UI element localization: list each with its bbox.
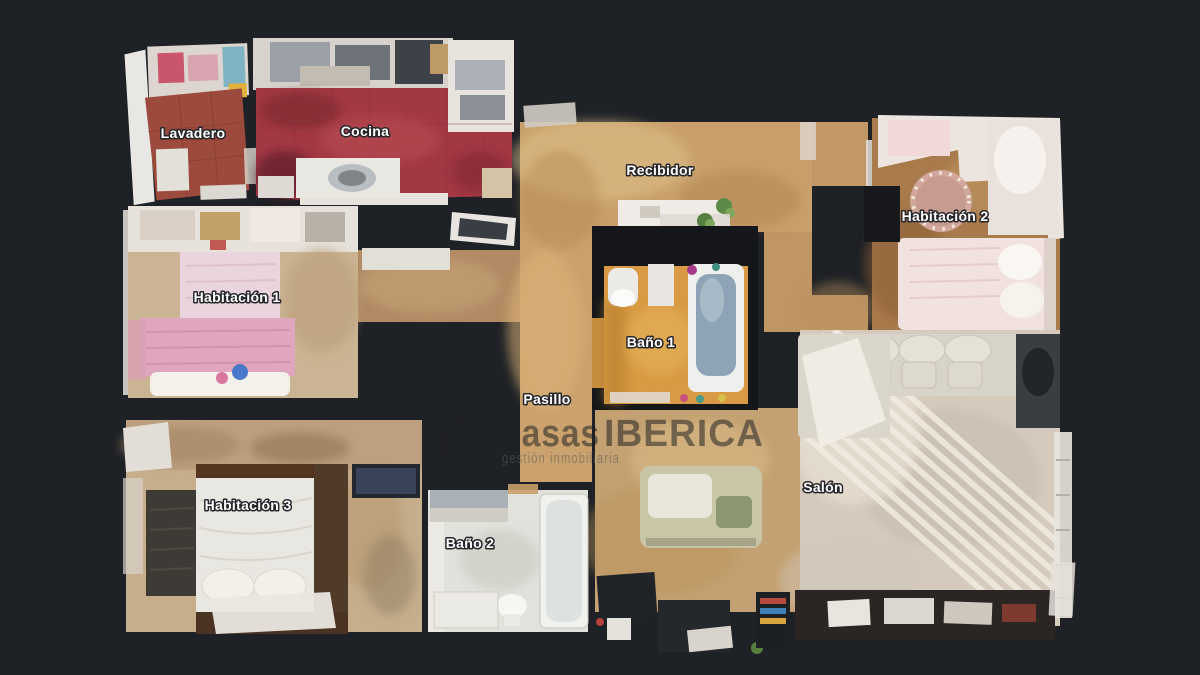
- room-label-recibidor: Recibidor: [626, 162, 694, 178]
- room-label-habitacion-3: Habitación 3: [205, 497, 292, 513]
- room-bano-1: [592, 213, 758, 410]
- watermark-brand-iberica: IBERICA: [604, 413, 764, 455]
- bedroom1-bed: [180, 252, 280, 318]
- room-label-lavadero: Lavadero: [161, 125, 226, 141]
- shower-tray: [434, 592, 498, 628]
- bed-headboard: [196, 464, 318, 478]
- washing-machine: [156, 148, 189, 191]
- bathroom2-sink-counter: [430, 508, 508, 522]
- entry-door-top: [523, 102, 576, 128]
- floorplan-image: Lavadero Cocina Recibidor Habitación 2 H…: [0, 0, 1200, 675]
- room-label-pasillo: Pasillo: [523, 391, 570, 407]
- room-label-habitacion-2: Habitación 2: [902, 208, 989, 224]
- bathroom2-mirror: [430, 490, 508, 508]
- watermark-brand-casas: casas: [502, 413, 600, 455]
- dark-rug: [146, 490, 198, 596]
- bed-pillow: [998, 244, 1042, 280]
- room-label-habitacion-1: Habitación 1: [194, 289, 281, 305]
- room-bano-2: [428, 484, 588, 632]
- room-habitacion-3: [120, 420, 422, 634]
- salon-armchair: [640, 466, 762, 548]
- hall-cabinet: [362, 248, 450, 270]
- room-label-bano-2: Baño 2: [446, 535, 494, 551]
- room-cocina: [253, 38, 514, 205]
- toy: [232, 364, 248, 380]
- floorplan-canvas: Lavadero Cocina Recibidor Habitación 2 H…: [0, 0, 1200, 675]
- room-label-salon: Salón: [803, 479, 843, 495]
- bed-pillow: [1000, 282, 1044, 318]
- bathroom1-cabinet: [648, 264, 674, 306]
- room-label-bano-1: Baño 1: [627, 334, 675, 350]
- watermark-tagline: gestión inmobiliaria: [502, 450, 620, 467]
- room-label-cocina: Cocina: [341, 123, 389, 139]
